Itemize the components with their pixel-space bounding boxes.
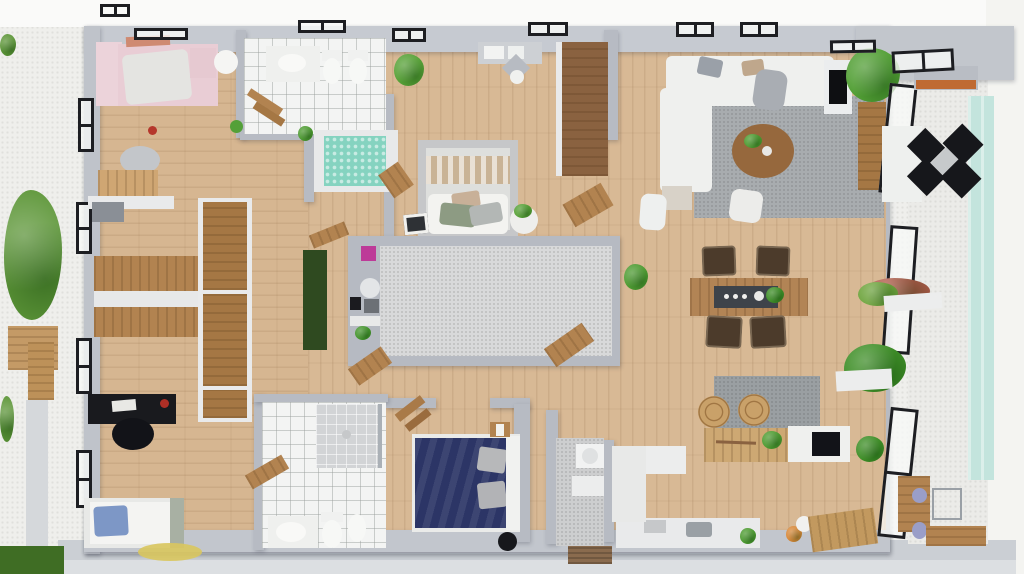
counter-item xyxy=(644,520,666,533)
dining-chair-4 xyxy=(749,315,787,349)
desk-paper xyxy=(112,399,137,412)
entry-bench xyxy=(572,476,604,496)
single-bed-headboard xyxy=(170,498,184,548)
window-left-2 xyxy=(76,202,92,254)
kids-bed-blanket xyxy=(122,49,193,106)
window-top-8 xyxy=(100,4,130,17)
concrete-strip-left xyxy=(26,400,48,546)
master-bidet xyxy=(348,514,366,542)
window-top-3 xyxy=(392,28,426,42)
shower-glass xyxy=(378,404,382,468)
bedroom1-striped-blanket xyxy=(426,156,510,184)
kids-nightstand xyxy=(190,48,216,78)
lavender-pot-2 xyxy=(912,522,927,539)
washer-door xyxy=(582,448,598,464)
master-basin xyxy=(276,522,306,542)
armchair xyxy=(639,193,667,231)
green-ball xyxy=(230,120,243,133)
office-table-1 xyxy=(94,256,208,291)
wall-mbath-top xyxy=(254,394,388,402)
window-top-5 xyxy=(676,22,714,37)
closet-column-wood-2 xyxy=(203,294,247,386)
shower-drain xyxy=(342,430,351,439)
kitchen-sink xyxy=(686,522,712,537)
dresser-box-1 xyxy=(484,46,504,59)
sofa-chaise xyxy=(660,88,712,192)
powder-mirror xyxy=(360,278,380,298)
kids-toy-red xyxy=(148,126,157,135)
powder-magenta xyxy=(361,246,376,261)
bar-stool-1 xyxy=(698,396,730,428)
runner-dot-3 xyxy=(742,294,747,299)
bottom-wall xyxy=(84,530,890,552)
bottom-apron-face xyxy=(58,560,1016,574)
closet-strip-dark xyxy=(560,42,608,176)
lavender-pot-1 xyxy=(912,488,927,503)
runner-plate xyxy=(754,291,764,301)
dining-chair-3 xyxy=(705,315,743,349)
coffee-table-bowl xyxy=(762,146,772,156)
bench-steps xyxy=(926,526,986,546)
storage-bench-orange xyxy=(916,80,976,89)
bath1-bidet xyxy=(349,58,367,84)
runner-dot-2 xyxy=(733,294,738,299)
kids-floor-lamp xyxy=(214,50,238,74)
pendant-table xyxy=(510,70,524,84)
top-sidewalk xyxy=(0,0,1024,27)
nightstand-candle xyxy=(496,424,504,436)
window-top-1 xyxy=(134,28,188,40)
floor-speaker xyxy=(498,532,517,551)
powder-black-box xyxy=(350,297,361,310)
picture-frame xyxy=(403,213,429,235)
cooktop xyxy=(812,432,840,456)
desk-red-item xyxy=(160,399,169,408)
window-left-3 xyxy=(76,338,92,394)
closet-column-wood-1 xyxy=(203,202,247,290)
spa-tub xyxy=(324,136,386,186)
closet-column-wood-3 xyxy=(203,390,247,418)
dining-chair-1 xyxy=(701,245,736,276)
tv-screen xyxy=(829,70,847,104)
planter-white-2 xyxy=(836,369,893,392)
office-chair xyxy=(112,418,154,450)
master-headboard xyxy=(506,436,520,530)
green-wall xyxy=(303,250,327,350)
runner-dot-1 xyxy=(724,294,729,299)
entry-counter-v xyxy=(612,446,646,522)
master-pillow-1 xyxy=(476,446,507,474)
window-top-4 xyxy=(528,22,568,36)
window-left-1 xyxy=(78,98,94,152)
powder-counter xyxy=(350,316,380,326)
deck-left-b xyxy=(28,342,54,400)
office-table-2 xyxy=(94,307,198,337)
pouf xyxy=(728,188,764,224)
dining-chair-2 xyxy=(755,245,790,276)
window-top-7 xyxy=(830,40,876,54)
door-mat xyxy=(568,546,612,564)
window-top-2 xyxy=(298,20,346,33)
bath1-basin xyxy=(278,54,306,72)
office-printer xyxy=(92,202,124,222)
floorplan-canvas xyxy=(0,0,1024,574)
skylight xyxy=(891,48,954,73)
master-toilet xyxy=(322,520,342,548)
office-table-frame xyxy=(94,291,208,307)
master-pillow-2 xyxy=(477,481,508,510)
folding-stool xyxy=(932,488,962,520)
yellow-rug xyxy=(138,543,202,561)
closet-strip-edge xyxy=(556,42,562,176)
grass-corner xyxy=(0,546,64,574)
sofa-blanket xyxy=(751,68,788,112)
sofa-side-table xyxy=(662,186,692,210)
powder-gray-box xyxy=(364,299,379,313)
single-bed-pillow xyxy=(93,505,129,537)
bar-stool-2 xyxy=(738,394,770,426)
kids-desk xyxy=(98,170,158,196)
bath1-toilet xyxy=(323,58,341,84)
window-top-6 xyxy=(740,22,778,37)
